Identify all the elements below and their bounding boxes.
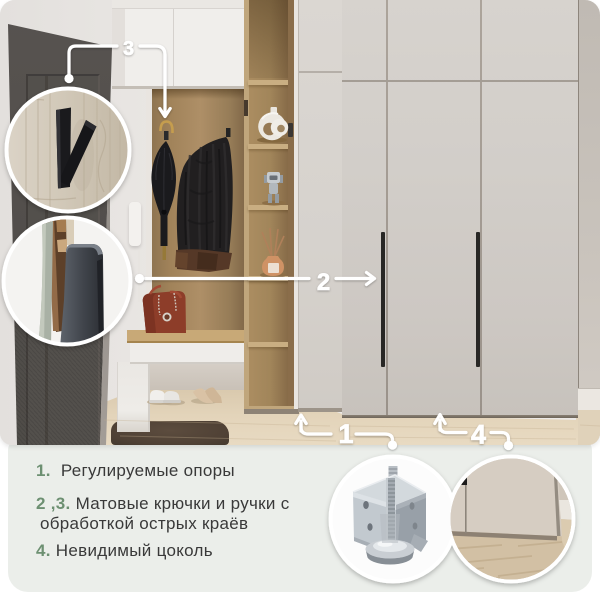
svg-text:1: 1 xyxy=(338,419,353,449)
svg-text:4: 4 xyxy=(471,420,486,450)
svg-text:3: 3 xyxy=(123,38,134,60)
svg-text:2: 2 xyxy=(317,269,330,296)
